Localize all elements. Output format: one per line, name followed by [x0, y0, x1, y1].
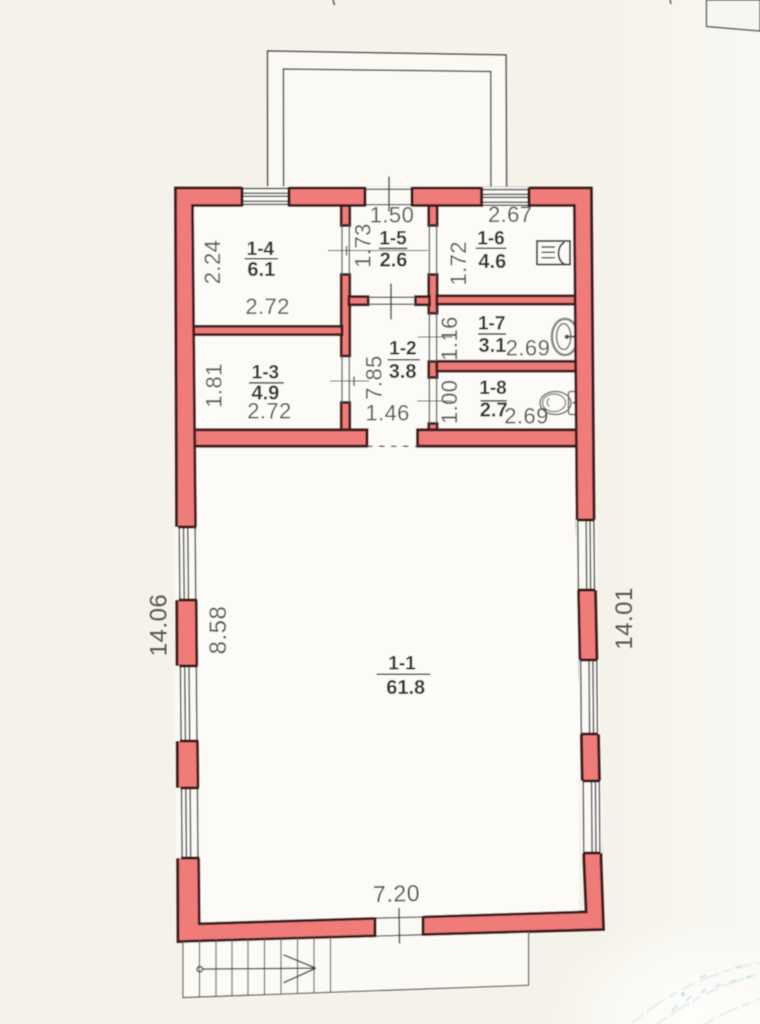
svg-text:2.72: 2.72: [245, 294, 289, 319]
svg-text:3.1: 3.1: [478, 335, 506, 357]
svg-text:1-5: 1-5: [379, 228, 407, 249]
svg-text:2.6: 2.6: [380, 250, 408, 272]
svg-text:8.58: 8.58: [205, 606, 232, 655]
svg-text:7.85: 7.85: [362, 355, 387, 399]
svg-text:1-6: 1-6: [477, 229, 504, 250]
svg-text:4.6: 4.6: [478, 251, 506, 273]
svg-text:2.67: 2.67: [488, 202, 532, 227]
svg-text:2.69: 2.69: [506, 336, 550, 361]
svg-text:1.50: 1.50: [370, 202, 414, 227]
svg-text:1-4: 1-4: [247, 239, 275, 260]
svg-text:1.00: 1.00: [437, 380, 462, 424]
svg-text:1-7: 1-7: [478, 313, 505, 334]
svg-text:1.72: 1.72: [446, 241, 471, 285]
svg-text:1.81: 1.81: [202, 363, 227, 407]
svg-text:14.01: 14.01: [611, 587, 638, 650]
svg-text:7.20: 7.20: [373, 880, 421, 907]
svg-text:6.1: 6.1: [247, 259, 275, 281]
svg-text:1-8: 1-8: [479, 378, 506, 399]
svg-text:3.8: 3.8: [389, 361, 417, 383]
svg-text:1.16: 1.16: [437, 316, 462, 360]
svg-text:1.73: 1.73: [351, 223, 376, 267]
svg-text:1-2: 1-2: [389, 338, 416, 359]
svg-text:1-3: 1-3: [252, 363, 279, 384]
svg-text:2.24: 2.24: [200, 240, 225, 284]
svg-text:1-1: 1-1: [388, 654, 416, 675]
svg-text:1.46: 1.46: [365, 401, 409, 426]
svg-text:2.72: 2.72: [247, 399, 291, 424]
svg-text:14.06: 14.06: [146, 594, 173, 657]
svg-text:2.69: 2.69: [504, 404, 548, 429]
svg-text:61.8: 61.8: [386, 677, 425, 699]
